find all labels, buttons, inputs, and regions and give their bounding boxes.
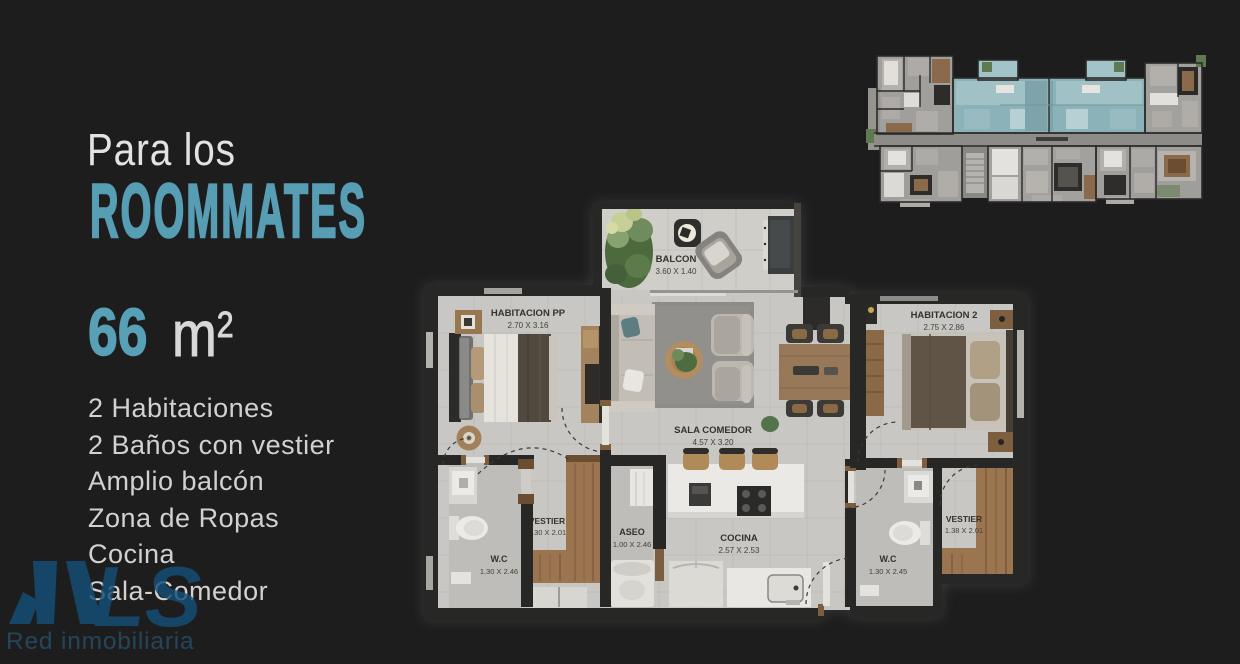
svg-text:1.00 X 2.46: 1.00 X 2.46 xyxy=(613,540,651,549)
svg-text:VESTIER: VESTIER xyxy=(529,516,565,526)
svg-text:SALA COMEDOR: SALA COMEDOR xyxy=(674,425,752,436)
svg-text:4.57 X 3.20: 4.57 X 3.20 xyxy=(693,438,734,447)
svg-text:W.C: W.C xyxy=(491,554,508,564)
svg-text:W.C: W.C xyxy=(880,554,897,564)
svg-text:2.70 X 3.16: 2.70 X 3.16 xyxy=(508,321,549,330)
svg-text:BALCON: BALCON xyxy=(656,254,697,265)
svg-text:1.30 X 2.46: 1.30 X 2.46 xyxy=(480,567,518,576)
svg-text:HABITACION PP: HABITACION PP xyxy=(491,308,566,319)
svg-text:Red inmobiliaria: Red inmobiliaria xyxy=(6,628,194,655)
svg-text:2.57 X 2.53: 2.57 X 2.53 xyxy=(719,546,760,555)
svg-text:3.60 X 1.40: 3.60 X 1.40 xyxy=(656,267,697,276)
svg-text:1.38 X 2.01: 1.38 X 2.01 xyxy=(945,526,983,535)
svg-text:ASEO: ASEO xyxy=(619,527,645,537)
svg-text:HABITACION 2: HABITACION 2 xyxy=(911,310,978,321)
svg-text:1.30 X 2.45: 1.30 X 2.45 xyxy=(869,567,907,576)
svg-text:COCINA: COCINA xyxy=(720,533,758,544)
svg-text:VESTIER: VESTIER xyxy=(946,514,982,524)
svg-text:2.75 X 2.86: 2.75 X 2.86 xyxy=(924,323,965,332)
svg-text:1.30 X 2.01: 1.30 X 2.01 xyxy=(528,528,566,537)
